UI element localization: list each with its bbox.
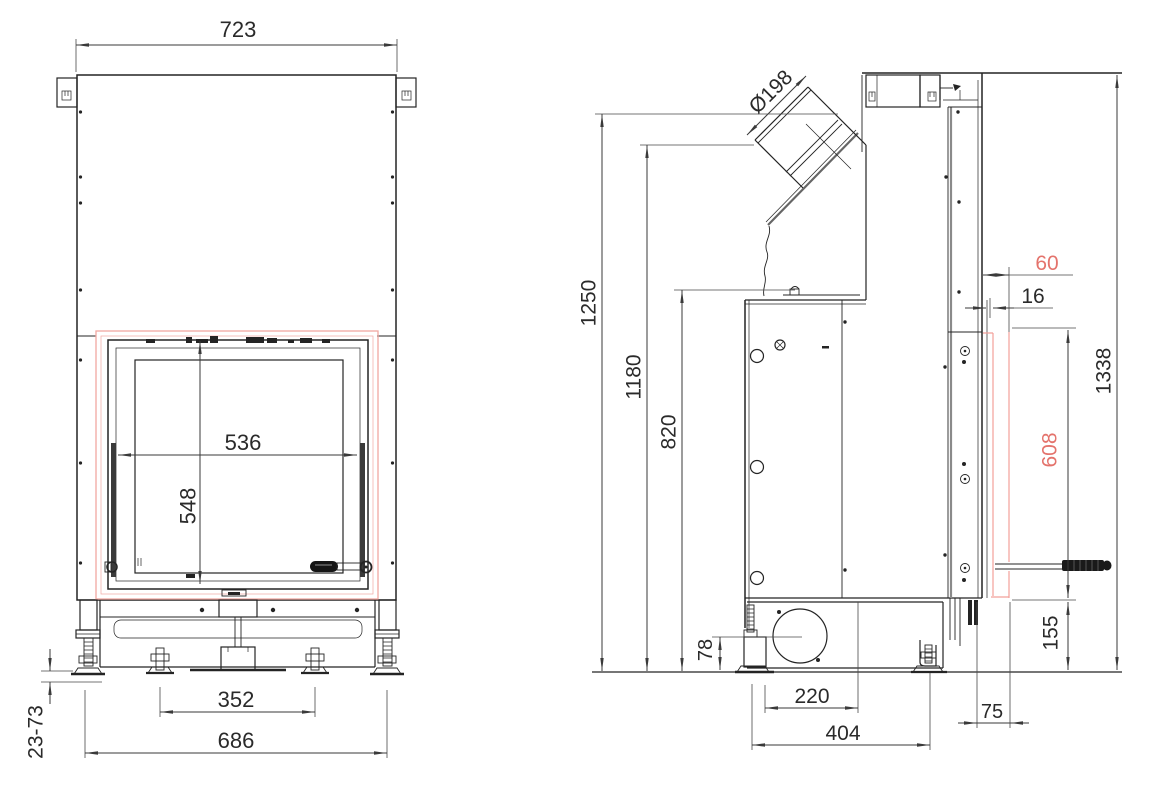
dim-23-73: 23-73 bbox=[25, 705, 48, 759]
tab-clip-glyphs bbox=[62, 91, 411, 100]
dim-220: 220 bbox=[794, 685, 829, 708]
dim-1250: 1250 bbox=[578, 280, 601, 327]
technical-drawing-page: 723 536 548 352 686 23-73 bbox=[0, 0, 1157, 797]
door-bottom-hardware bbox=[135, 558, 246, 596]
left-gasket-strip bbox=[111, 443, 116, 577]
break-line bbox=[764, 226, 770, 296]
front-view: 723 536 548 352 686 23-73 bbox=[25, 17, 417, 759]
right-gasket-strip bbox=[360, 443, 365, 577]
handle-grip bbox=[310, 561, 338, 572]
front-bottom-details bbox=[950, 598, 978, 646]
inner-foot-left bbox=[146, 648, 174, 673]
dim-16: 16 bbox=[1021, 285, 1044, 308]
dim-1338: 1338 bbox=[1093, 348, 1116, 395]
dim-155: 155 bbox=[1040, 615, 1063, 650]
side-body bbox=[745, 73, 1112, 646]
dim-686: 686 bbox=[218, 728, 255, 753]
dim-820: 820 bbox=[658, 414, 681, 449]
left-mount-tab bbox=[57, 78, 77, 107]
dim-548: 548 bbox=[176, 488, 201, 525]
side-screw-dots bbox=[79, 110, 394, 564]
front-leg-side bbox=[911, 640, 947, 672]
dim-352: 352 bbox=[218, 687, 255, 712]
side-dimensions: Ø198 1250 1180 820 78 220 404 bbox=[578, 66, 1118, 750]
side-flue bbox=[755, 87, 866, 296]
dim-404: 404 bbox=[825, 722, 860, 745]
dim-536: 536 bbox=[225, 430, 262, 455]
front-dimensions: 723 536 548 352 686 23-73 bbox=[25, 17, 398, 759]
dim-1180: 1180 bbox=[623, 354, 646, 399]
dim-75: 75 bbox=[981, 701, 1003, 723]
dim-608: 608 bbox=[1039, 432, 1062, 467]
front-door bbox=[105, 336, 372, 596]
front-glass bbox=[135, 360, 343, 573]
side-handle bbox=[995, 560, 1112, 571]
right-mount-tab bbox=[396, 78, 416, 107]
air-inlet bbox=[773, 609, 827, 663]
top-bracket bbox=[940, 75, 978, 100]
dim-60: 60 bbox=[1035, 252, 1058, 275]
rear-wall-holes bbox=[751, 350, 764, 585]
top-clip-glyphs bbox=[869, 92, 936, 101]
dim-78: 78 bbox=[695, 639, 717, 661]
side-view: Ø198 1250 1180 820 78 220 404 bbox=[578, 66, 1123, 750]
frame-screws bbox=[961, 347, 970, 583]
inner-foot-right bbox=[301, 648, 329, 673]
front-base bbox=[71, 600, 404, 674]
dim-723: 723 bbox=[220, 17, 257, 42]
rear-leg-side bbox=[735, 605, 774, 672]
dimension-drawing: 723 536 548 352 686 23-73 bbox=[0, 0, 1157, 797]
